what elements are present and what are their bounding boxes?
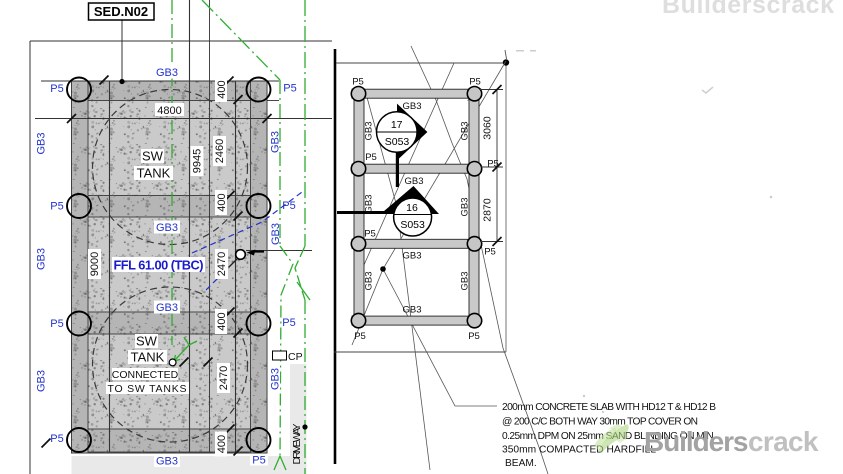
svg-text:GB3: GB3 bbox=[36, 132, 48, 154]
svg-text:P5: P5 bbox=[50, 433, 63, 445]
svg-text:4800: 4800 bbox=[157, 105, 181, 117]
svg-text:GB3: GB3 bbox=[156, 456, 178, 468]
svg-text:GB3: GB3 bbox=[156, 67, 178, 79]
svg-text:GB3: GB3 bbox=[156, 222, 178, 234]
svg-text:P5: P5 bbox=[282, 200, 295, 212]
svg-text:GB3: GB3 bbox=[460, 197, 471, 216]
svg-text:P5: P5 bbox=[365, 152, 377, 163]
svg-text:P5: P5 bbox=[50, 201, 63, 213]
svg-text:400: 400 bbox=[216, 435, 228, 453]
svg-text:P5: P5 bbox=[283, 83, 296, 95]
svg-text:GB3: GB3 bbox=[460, 271, 471, 290]
svg-text:400: 400 bbox=[216, 80, 228, 98]
svg-text:TANK: TANK bbox=[137, 166, 171, 181]
svg-text:GB3: GB3 bbox=[460, 121, 471, 140]
svg-text:CONNECTED: CONNECTED bbox=[112, 369, 179, 381]
svg-text:P5: P5 bbox=[468, 331, 480, 342]
svg-text:P5: P5 bbox=[354, 331, 366, 342]
svg-text:9000: 9000 bbox=[89, 252, 101, 276]
svg-text:GB3: GB3 bbox=[402, 251, 421, 262]
svg-text:350mm COMPACTED HARDFILL: 350mm COMPACTED HARDFILL bbox=[502, 445, 656, 456]
svg-text:400: 400 bbox=[216, 193, 228, 211]
svg-text:TO SW TANKS: TO SW TANKS bbox=[108, 383, 187, 395]
svg-text:GB3: GB3 bbox=[364, 271, 375, 290]
svg-text:TANK: TANK bbox=[131, 350, 165, 365]
svg-text:3060: 3060 bbox=[482, 116, 494, 140]
svg-text:S053: S053 bbox=[385, 136, 410, 148]
svg-text:P5: P5 bbox=[364, 229, 376, 240]
svg-text:400: 400 bbox=[216, 312, 228, 330]
svg-text:GB3: GB3 bbox=[36, 370, 48, 392]
svg-text:2460: 2460 bbox=[214, 139, 226, 163]
svg-text:GB3: GB3 bbox=[404, 176, 423, 187]
svg-text:GB3: GB3 bbox=[270, 131, 282, 153]
svg-text:SW: SW bbox=[142, 149, 164, 164]
svg-text:Builders: Builders bbox=[644, 426, 748, 457]
svg-text:P5: P5 bbox=[282, 317, 295, 329]
svg-text:GB3: GB3 bbox=[36, 248, 48, 270]
svg-text:9945: 9945 bbox=[192, 149, 204, 173]
svg-text:P5: P5 bbox=[50, 318, 63, 330]
svg-text:GB3: GB3 bbox=[156, 302, 178, 314]
svg-text:P5: P5 bbox=[487, 159, 499, 170]
svg-text:GB3: GB3 bbox=[270, 223, 282, 245]
svg-text:DRIVEWAY: DRIVEWAY bbox=[291, 424, 303, 465]
svg-text:crack: crack bbox=[748, 426, 819, 457]
svg-text:FFL 61.00 (TBC): FFL 61.00 (TBC) bbox=[114, 258, 204, 273]
svg-text:GB3: GB3 bbox=[364, 121, 375, 140]
svg-text:16: 16 bbox=[406, 202, 418, 214]
svg-text:S053: S053 bbox=[400, 219, 425, 231]
svg-text:P5: P5 bbox=[469, 77, 481, 88]
svg-text:P5: P5 bbox=[50, 83, 63, 95]
svg-text:17: 17 bbox=[391, 119, 403, 131]
svg-text:P5: P5 bbox=[252, 455, 265, 467]
svg-text:GB3: GB3 bbox=[402, 305, 421, 316]
svg-text:P5: P5 bbox=[352, 77, 364, 88]
svg-text:SW: SW bbox=[136, 334, 158, 349]
svg-text:GB3: GB3 bbox=[364, 194, 375, 213]
svg-text:2470: 2470 bbox=[218, 366, 230, 390]
svg-text:CP: CP bbox=[288, 351, 303, 363]
svg-text:Builderscrack: Builderscrack bbox=[662, 0, 834, 19]
svg-text:2870: 2870 bbox=[482, 198, 494, 222]
svg-text:BEAM.: BEAM. bbox=[505, 458, 537, 469]
svg-text:P5: P5 bbox=[484, 247, 496, 258]
svg-text:2470: 2470 bbox=[216, 252, 228, 276]
svg-text:200mm CONCRETE SLAB WITH HD12: 200mm CONCRETE SLAB WITH HD12 T & HD12 B bbox=[502, 402, 716, 413]
svg-text:SED.N02: SED.N02 bbox=[94, 4, 148, 19]
svg-text:GB3: GB3 bbox=[270, 368, 282, 390]
svg-text:GB3: GB3 bbox=[402, 101, 421, 112]
